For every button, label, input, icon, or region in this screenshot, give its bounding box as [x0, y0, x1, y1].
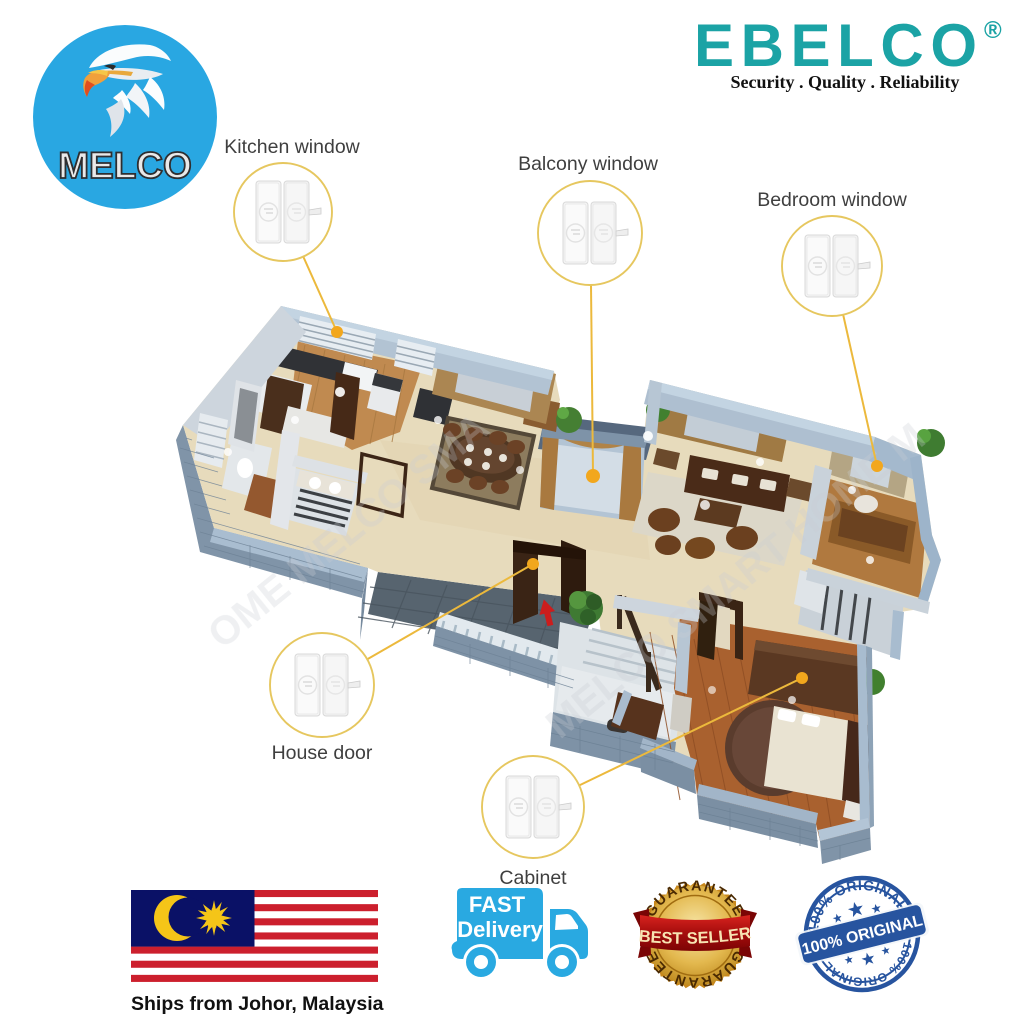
- svg-text:Cabinet: Cabinet: [499, 867, 567, 889]
- svg-text:FAST: FAST: [469, 892, 526, 917]
- svg-text:®: ®: [984, 17, 1002, 44]
- svg-text:House door: House door: [272, 742, 373, 764]
- svg-text:MELCO: MELCO: [58, 145, 192, 186]
- svg-text:Ships from Johor, Malaysia: Ships from Johor, Malaysia: [131, 993, 384, 1015]
- svg-text:Kitchen window: Kitchen window: [224, 136, 360, 158]
- svg-text:Delivery: Delivery: [457, 917, 543, 942]
- svg-text:Balcony window: Balcony window: [518, 153, 659, 175]
- svg-text:EBELCO: EBELCO: [694, 12, 982, 79]
- svg-text:Security . Quality . Reliabili: Security . Quality . Reliability: [731, 72, 960, 92]
- svg-text:Bedroom window: Bedroom window: [757, 189, 907, 211]
